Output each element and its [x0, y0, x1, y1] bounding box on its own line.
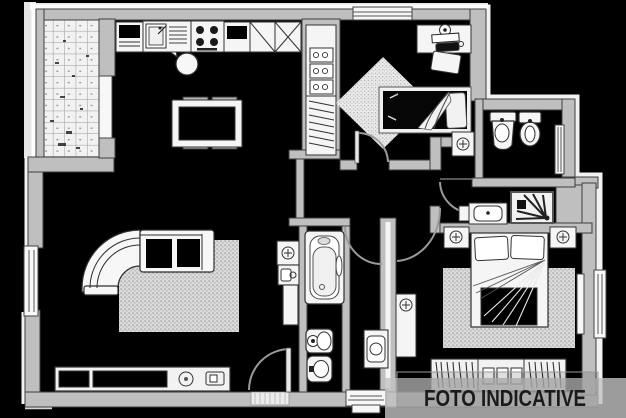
svg-text:FOTO INDICATIVE: FOTO INDICATIVE — [424, 385, 586, 411]
